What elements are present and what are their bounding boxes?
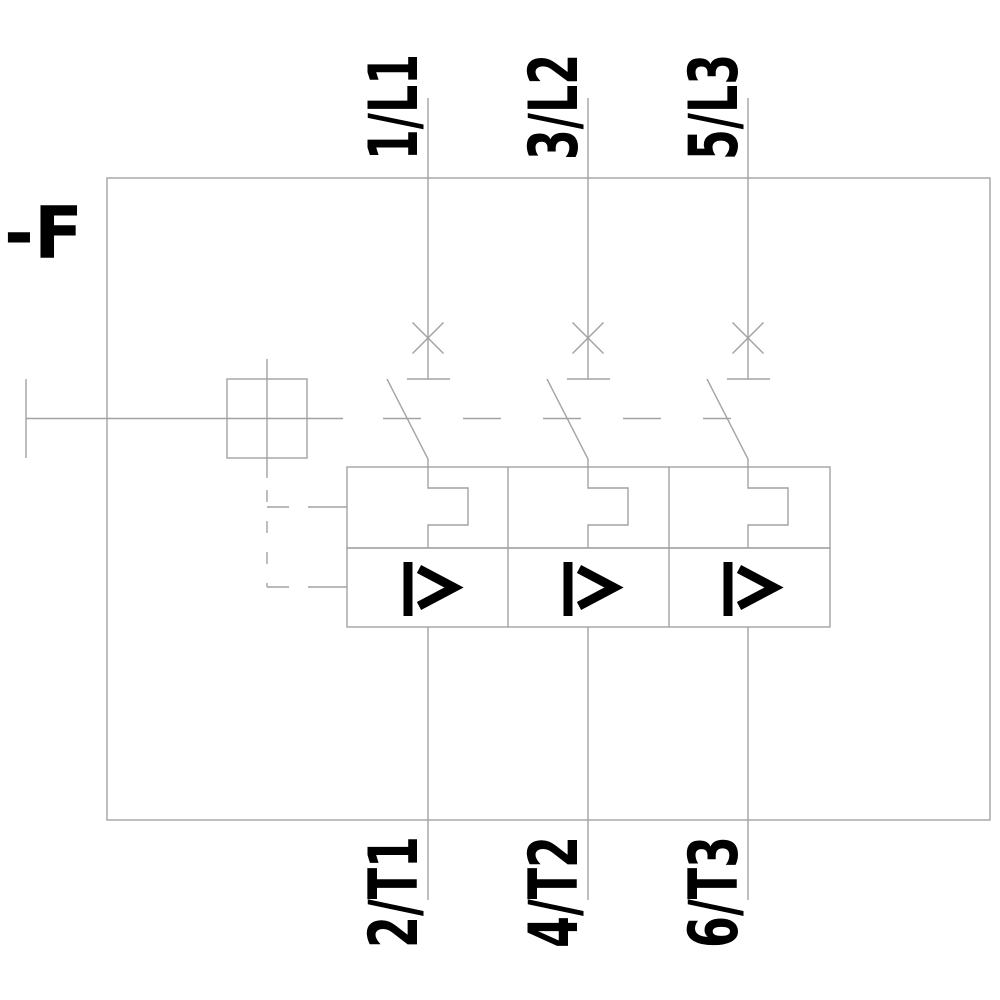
pole-2-top-terminal-label: 3/L2 [515,54,594,160]
pole-2: 3/L2 4/T2 [515,54,628,948]
pole-3-bottom-terminal-label: 6/T3 [675,836,754,948]
pole-1-thermal-trip-icon [428,467,468,548]
pole-1-contact-blade [387,379,428,467]
pole-2-overcurrent-trip-icon [568,562,614,616]
pole-3-thermal-trip-icon [748,467,788,548]
pole-2-bottom-terminal-label: 4/T2 [515,836,594,948]
magnetic-trip-row-box [347,548,830,627]
device-designator: -F [4,191,83,275]
pole-1-overcurrent-trip-icon [408,562,454,616]
pole-2-thermal-trip-icon [588,467,628,548]
pole-1-bottom-terminal-label: 2/T1 [355,836,434,948]
enclosure-frame [107,178,990,820]
pole-3-top-terminal-label: 5/L3 [675,54,754,160]
circuit-diagram: -F 1/L1 2/T1 [0,0,1000,1000]
pole-3: 5/L3 6/T3 [675,54,788,948]
pole-1: 1/L1 2/T1 [355,54,468,948]
pole-3-contact-blade [707,379,748,467]
pole-2-contact-blade [547,379,588,467]
pole-1-top-terminal-label: 1/L1 [355,54,434,160]
pole-3-overcurrent-trip-icon [728,562,774,616]
operating-mechanism [26,359,731,587]
